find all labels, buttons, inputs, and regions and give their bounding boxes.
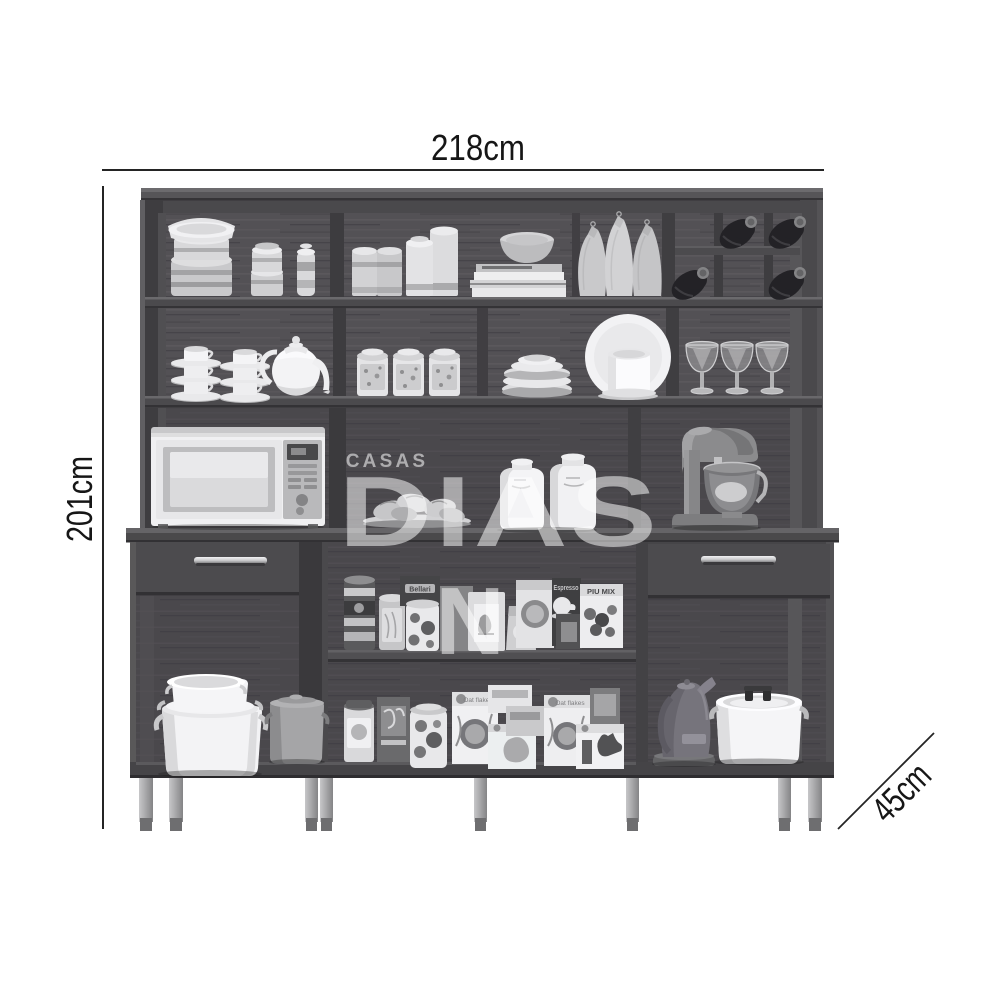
svg-text:Oat flakes: Oat flakes xyxy=(555,700,585,707)
svg-text:218cm: 218cm xyxy=(431,127,525,168)
svg-text:Bellari: Bellari xyxy=(409,587,430,594)
svg-text:N: N xyxy=(435,568,504,675)
svg-text:201cm: 201cm xyxy=(59,456,100,542)
svg-text:Espresso: Espresso xyxy=(554,585,579,592)
svg-text:DIAS: DIAS xyxy=(339,455,660,567)
svg-text:PIU MIX: PIU MIX xyxy=(587,587,615,596)
